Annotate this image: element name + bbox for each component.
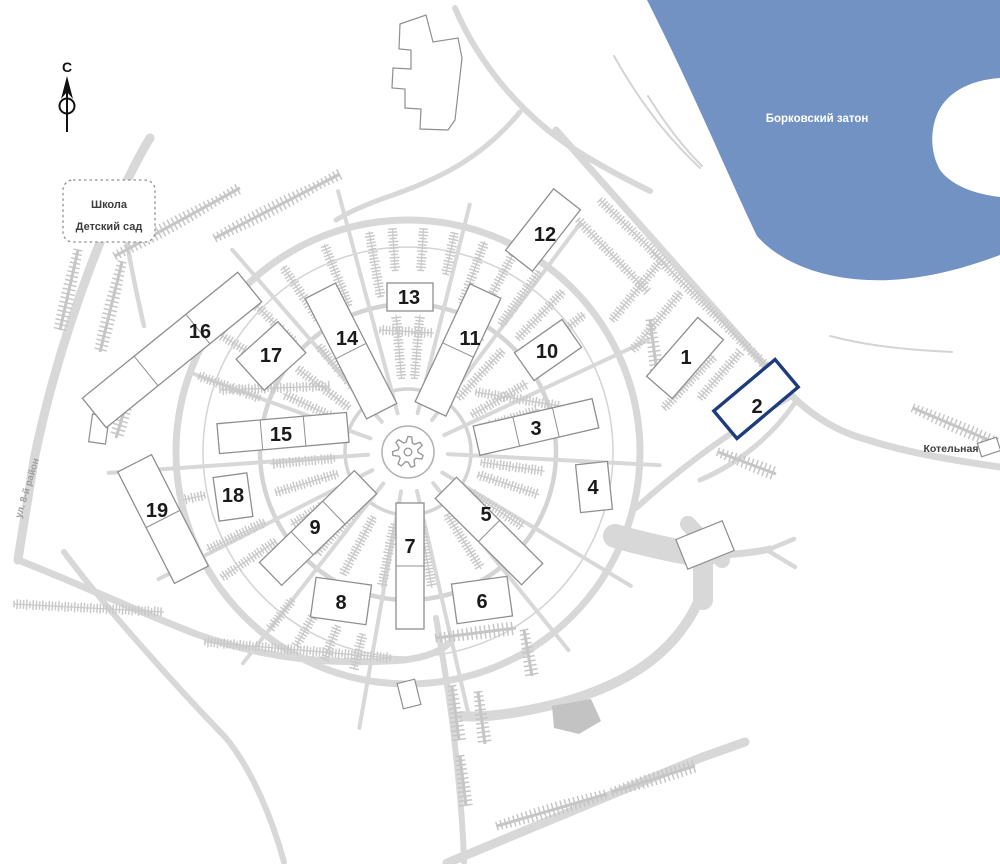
building-8[interactable]: 8 <box>310 577 371 624</box>
north-arrow: С <box>60 59 75 132</box>
building-7-label: 7 <box>404 536 415 558</box>
water-label: Борковский затон <box>766 113 869 125</box>
map-canvas: 12345678910111213141516171819 Борковский… <box>0 0 1000 864</box>
building-3-label: 3 <box>530 418 541 440</box>
unnumbered-building-top <box>392 15 462 130</box>
building-6[interactable]: 6 <box>451 576 512 623</box>
building-1-label: 1 <box>680 347 691 369</box>
building-3[interactable]: 3 <box>473 399 599 456</box>
building-12-label: 12 <box>534 224 556 246</box>
building-4[interactable]: 4 <box>576 461 613 512</box>
school-label-line2: Детский сад <box>76 221 143 233</box>
building-8-label: 8 <box>335 592 346 614</box>
school-label-line1: Школа <box>91 199 128 211</box>
building-15[interactable]: 15 <box>217 412 349 453</box>
site-plan-map: 12345678910111213141516171819 Борковский… <box>0 0 1000 864</box>
water-layer <box>647 0 1000 280</box>
building-14-label: 14 <box>336 328 359 350</box>
building-13[interactable]: 13 <box>387 283 433 311</box>
building-13-label: 13 <box>398 287 420 309</box>
boiler-label: Котельная <box>924 443 979 455</box>
building-16-label: 16 <box>189 321 211 343</box>
water-area <box>647 0 1000 280</box>
school-box: Школа Детский сад <box>63 180 155 242</box>
building-10-label: 10 <box>536 341 558 363</box>
building-19-label: 19 <box>146 500 168 522</box>
building-4-label: 4 <box>587 477 599 499</box>
building-15-label: 15 <box>270 424 292 446</box>
building-17[interactable]: 17 <box>236 322 306 391</box>
building-18[interactable]: 18 <box>213 473 253 521</box>
north-label: С <box>62 59 72 75</box>
building-12[interactable]: 12 <box>506 189 581 271</box>
building-2-label: 2 <box>751 396 762 418</box>
building-17-label: 17 <box>260 345 282 367</box>
building-6-label: 6 <box>476 591 487 613</box>
building-7[interactable]: 7 <box>396 503 424 629</box>
building-5-label: 5 <box>480 504 491 526</box>
building-19[interactable]: 19 <box>118 455 209 584</box>
building-9-label: 9 <box>309 517 320 539</box>
building-2[interactable]: 2 <box>714 359 798 438</box>
building-11-label: 11 <box>459 328 480 350</box>
boiler-building <box>977 437 1000 456</box>
building-18-label: 18 <box>222 485 244 507</box>
